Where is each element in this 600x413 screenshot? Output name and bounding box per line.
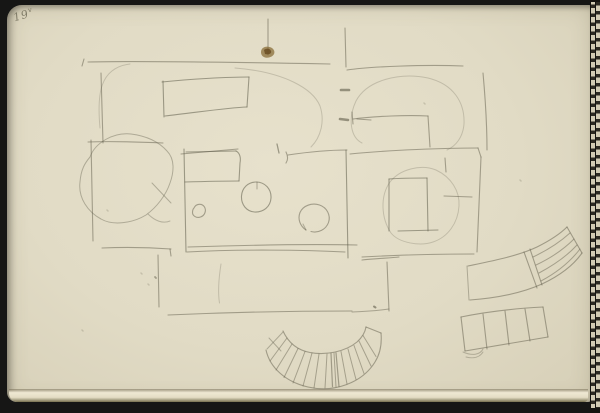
sketchbook-scan: 19v	[0, 0, 600, 413]
sketchbook-page	[7, 5, 592, 402]
page-fore-edge	[9, 389, 588, 402]
stitch-column-right	[596, 2, 600, 408]
stitch-column-left	[591, 2, 595, 408]
binding-stitches	[590, 0, 600, 413]
